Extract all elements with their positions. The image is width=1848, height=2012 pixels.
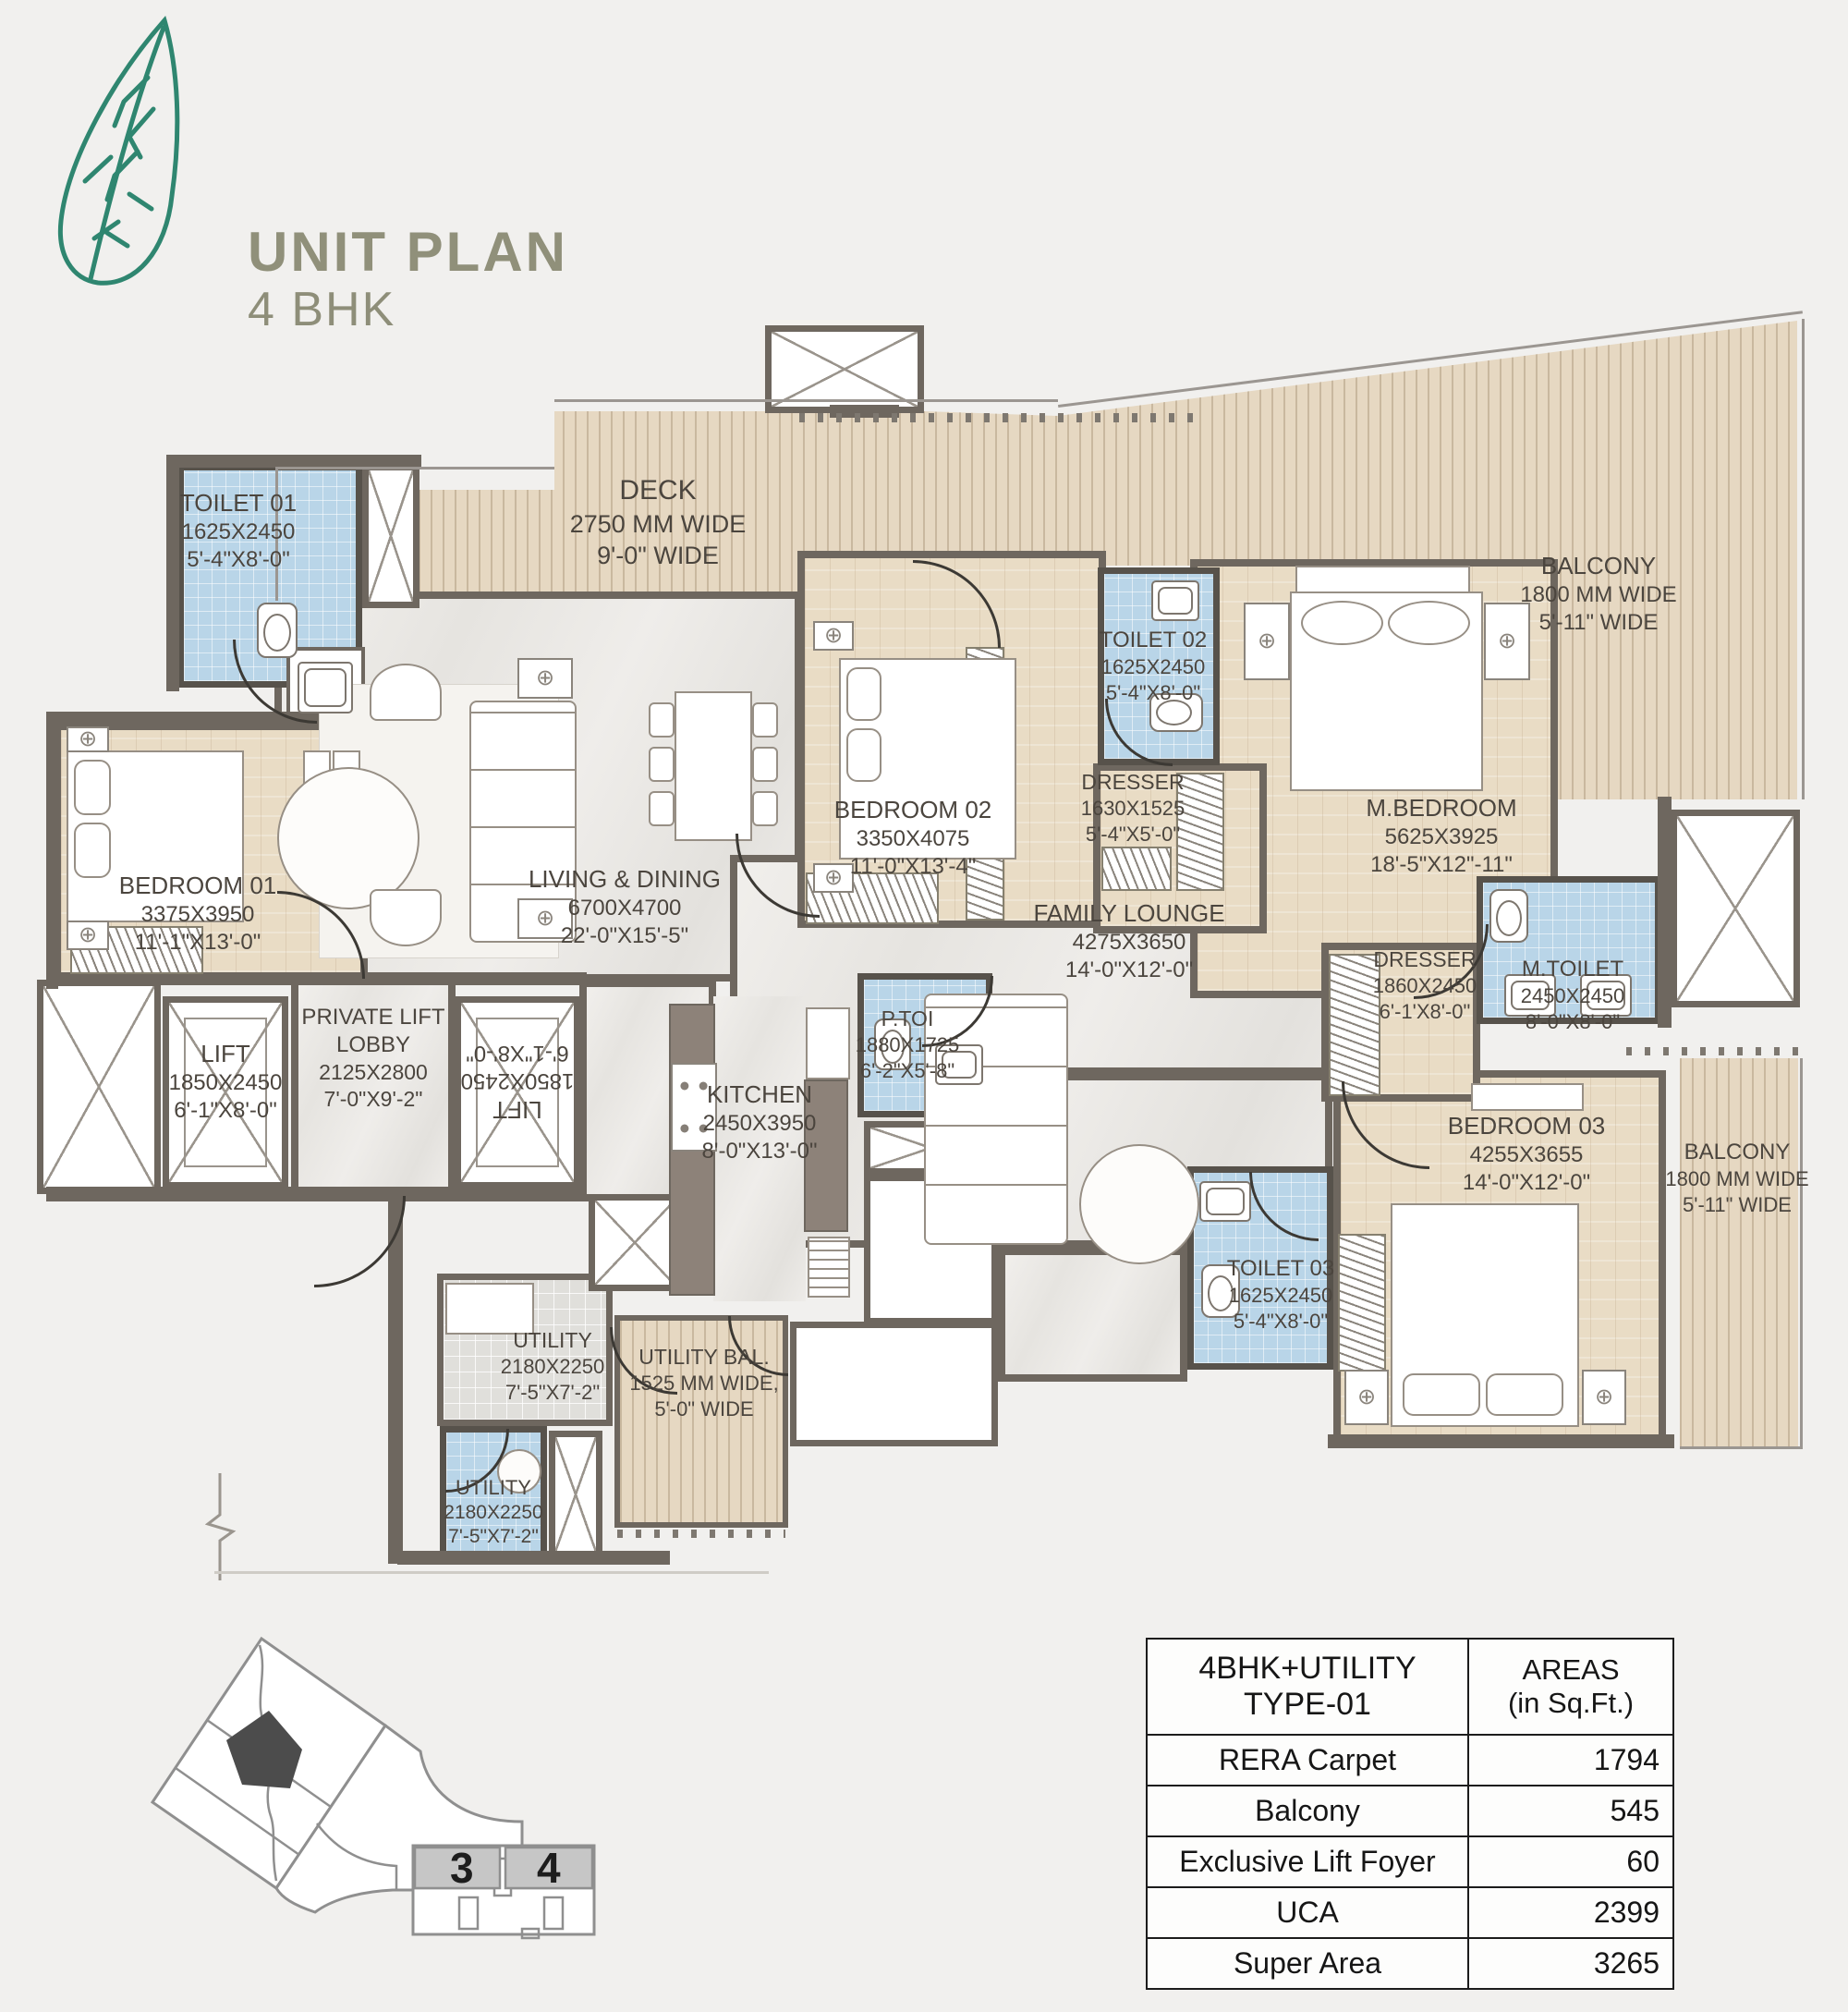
wall-bedroom01-left xyxy=(46,712,58,989)
area-row-label: Exclusive Lift Foyer xyxy=(1147,1836,1468,1887)
dining-chair-4 xyxy=(752,702,778,738)
room-label-utility-1: UTILITY2180X22507'-5"X7'-2" xyxy=(501,1327,605,1405)
mbedroom-nightstand-1 xyxy=(1244,603,1290,680)
table-row: Balcony 545 xyxy=(1147,1786,1673,1836)
dining-table xyxy=(675,691,752,841)
deck-edge-ticks xyxy=(799,413,1206,422)
key-plan-label-4: 4 xyxy=(537,1844,561,1892)
ground-line xyxy=(214,1571,769,1574)
room-label-utility-2: UTILITY2180X22507'-5"X7'-2" xyxy=(444,1475,542,1550)
area-row-label: Super Area xyxy=(1147,1938,1468,1989)
room-label-family-lounge: FAMILY LOUNGE4275X365014'-0"X12'-0" xyxy=(1033,898,1224,984)
deck-railing-top xyxy=(554,399,1058,402)
shaft-entry-side xyxy=(589,1194,681,1291)
unit-plan-page: UNIT PLAN 4 BHK xyxy=(0,0,1848,2012)
area-row-value: 2399 xyxy=(1468,1887,1673,1938)
dining-chair-5 xyxy=(752,747,778,782)
bedroom03-nightstand-1 xyxy=(1344,1370,1389,1425)
page-title: UNIT PLAN xyxy=(248,220,568,284)
bedroom01-nightstand-1 xyxy=(67,726,109,752)
room-label-deck: DECK2750 MM WIDE9'-0" WIDE xyxy=(570,473,747,571)
page-subtitle: 4 BHK xyxy=(248,282,395,337)
room-label-lift-2: LIFT1850X24506'-1"X8'-0" xyxy=(461,1039,575,1125)
table-row: Super Area 3265 xyxy=(1147,1938,1673,1989)
table-row: UCA 2399 xyxy=(1147,1887,1673,1938)
living-armchair-top xyxy=(370,664,442,721)
wall-right-outer xyxy=(1658,797,1672,1028)
toilet02-basin xyxy=(1151,580,1199,621)
area-row-label: Balcony xyxy=(1147,1786,1468,1836)
room-label-toilet-01: TOILET 011625X24505'-4"X8'-0" xyxy=(180,488,297,574)
bedroom02-pillow-2 xyxy=(846,728,881,782)
room-label-balcony-right: BALCONY1800 MM WIDE5'-11" WIDE xyxy=(1665,1139,1808,1218)
wall-utility-bottom xyxy=(397,1551,670,1565)
break-line xyxy=(205,1473,238,1580)
dining-chair-1 xyxy=(649,702,675,738)
room-label-dresser-02: DRESSER1630X15255'-4"X5'-0" xyxy=(1081,769,1185,847)
mbedroom-console xyxy=(1295,566,1470,593)
shaft-left-outer xyxy=(37,980,161,1194)
room-label-master-bedroom: M.BEDROOM5625X392518'-5"X12"-11" xyxy=(1366,793,1516,879)
areas-table: 4BHK+UTILITY TYPE-01 AREAS (in Sq.Ft.) R… xyxy=(1146,1638,1674,1990)
living-side-table-1 xyxy=(517,658,573,699)
table-row: Exclusive Lift Foyer 60 xyxy=(1147,1836,1673,1887)
family-round-table xyxy=(1079,1144,1199,1264)
area-row-label: UCA xyxy=(1147,1887,1468,1938)
living-coffee-table xyxy=(277,767,419,909)
room-label-toilet-03: TOILET 031625X24505'-4"X8'-0" xyxy=(1227,1255,1335,1335)
bedroom01-pillow-1 xyxy=(74,760,111,815)
deck-railing-left xyxy=(275,467,554,469)
wall-toilet01-left xyxy=(166,455,179,691)
room-label-bedroom-01: BEDROOM 013375X395011'-1"X13'-0" xyxy=(119,871,277,957)
bedroom02-pillow-1 xyxy=(846,667,881,721)
wall-bed03-bottom xyxy=(1328,1434,1674,1448)
kitchen-fridge xyxy=(806,1007,850,1079)
utility-balcony-ticks xyxy=(617,1530,785,1538)
closet-utility-right xyxy=(790,1322,998,1446)
room-label-powder-toilet: P.TOI1880X17256'-2"X5'-8" xyxy=(856,1006,960,1083)
living-armchair-bottom xyxy=(370,889,442,946)
area-row-value: 3265 xyxy=(1468,1938,1673,1989)
shaft-near-toilet-01 xyxy=(362,464,419,608)
wardrobe-dresser02-bottom xyxy=(1101,847,1172,891)
room-label-balcony-top: BALCONY1800 MM WIDE5'-11" WIDE xyxy=(1520,551,1676,637)
area-row-value: 60 xyxy=(1468,1836,1673,1887)
wardrobe-bedroom03 xyxy=(1338,1234,1386,1372)
room-label-bedroom-03: BEDROOM 034255X365514'-0"X12'-0" xyxy=(1448,1111,1606,1197)
room-label-toilet-02: TOILET 021625X24505'-4"X8'-0" xyxy=(1100,627,1208,706)
bedroom03-nightstand-2 xyxy=(1582,1370,1626,1425)
bedroom03-pillow-1 xyxy=(1403,1373,1480,1416)
areas-table-areas-header: AREAS (in Sq.Ft.) xyxy=(1468,1639,1673,1735)
room-label-private-lift-lobby: PRIVATE LIFTLOBBY2125X28007'-0"X9'-2" xyxy=(301,1004,444,1113)
room-label-master-dresser: DRESSER1860X24506'-1'X8'-0" xyxy=(1373,946,1477,1024)
dining-chair-2 xyxy=(649,747,675,782)
bedroom03-pillow-2 xyxy=(1486,1373,1563,1416)
balcony-lower-ticks xyxy=(1626,1047,1798,1055)
table-row: RERA Carpet 1794 xyxy=(1147,1735,1673,1786)
wall-toilet01-top xyxy=(166,455,421,468)
dining-chair-3 xyxy=(649,791,675,826)
dining-chair-6 xyxy=(752,791,778,826)
wall-utility-left xyxy=(388,1196,403,1564)
toilet03-basin xyxy=(1199,1181,1251,1222)
bedroom02-nightstand-1 xyxy=(813,621,854,651)
shaft-utility-side xyxy=(549,1431,602,1558)
area-row-value: 1794 xyxy=(1468,1735,1673,1786)
bedroom01-pillow-2 xyxy=(74,823,111,878)
area-row-label: RERA Carpet xyxy=(1147,1735,1468,1786)
balcony-lower-railing-right xyxy=(1800,1058,1803,1448)
leaf-icon xyxy=(26,13,238,290)
mbedroom-pillow-2 xyxy=(1388,601,1470,645)
room-label-kitchen: KITCHEN2450X39508'-0"X13'-0" xyxy=(702,1079,818,1165)
room-label-living-dining: LIVING & DINING6700X470022'-0"X15'-5" xyxy=(529,864,721,950)
room-label-utility-balcony: UTILITY BAL.1525 MM WIDE,5'-0" WIDE xyxy=(629,1344,778,1421)
areas-table-header-row: 4BHK+UTILITY TYPE-01 AREAS (in Sq.Ft.) xyxy=(1147,1639,1673,1735)
room-label-master-toilet: M.TOILET2450X24508'-0"X8'-0" xyxy=(1521,956,1625,1035)
shaft-right-middle xyxy=(1671,810,1800,1007)
areas-table-type-header: 4BHK+UTILITY TYPE-01 xyxy=(1147,1639,1468,1735)
bedroom03-console xyxy=(1471,1083,1584,1111)
room-label-bedroom-02: BEDROOM 023350X407511'-0"X13'-4" xyxy=(834,795,992,881)
mbedroom-pillow-1 xyxy=(1301,601,1383,645)
area-row-value: 545 xyxy=(1468,1786,1673,1836)
key-plan: 3 4 xyxy=(88,1604,605,2001)
room-label-lift-1: LIFT1850X24506'-1"X8'-0" xyxy=(169,1039,283,1125)
key-plan-label-3: 3 xyxy=(450,1844,474,1892)
corridor-family xyxy=(998,1248,1187,1382)
bedroom01-nightstand-2 xyxy=(67,921,109,950)
mtoilet-wc xyxy=(1489,889,1528,943)
balcony-lower-railing-bottom xyxy=(1680,1446,1803,1449)
balcony-railing-right xyxy=(1802,319,1805,799)
balcony-lower-right-floor xyxy=(1680,1058,1798,1446)
kitchen-shelf xyxy=(808,1237,850,1298)
